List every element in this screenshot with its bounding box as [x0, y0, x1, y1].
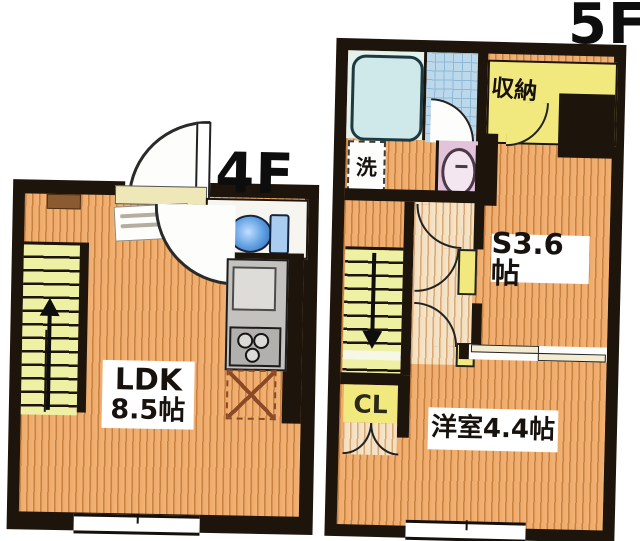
5f-window — [405, 520, 525, 541]
room-label-service: S3.6帖 — [490, 227, 589, 290]
floor-plan-canvas: LDK 8.5帖 4F 収納 洗 — [0, 0, 640, 541]
5f-western-label-box: 洋室4.4帖 — [428, 407, 559, 452]
5f-service-label-box: S3.6帖 — [491, 234, 590, 284]
floor-label-5f: 5F — [568, 0, 640, 57]
room-label-closet: CL — [353, 389, 388, 419]
room-label-storage: 収納 — [490, 68, 539, 106]
5f-door-post — [457, 249, 477, 295]
5f-closet: CL — [343, 384, 398, 423]
washbasin-tap-icon — [455, 165, 467, 168]
room-label-laundry: 洗 — [356, 151, 378, 182]
floor-plan-5f: 収納 洗 S3.6帖 — [0, 0, 640, 541]
down-arrow-head-icon — [362, 331, 382, 349]
sliding-panel — [471, 344, 539, 354]
5f-stair-landing — [343, 350, 401, 360]
5f-void-block — [558, 93, 616, 158]
bathtub-icon — [350, 54, 424, 142]
5f-laundry-space: 洗 — [347, 140, 386, 193]
sliding-panel — [538, 353, 606, 363]
room-label-western: 洋室4.4帖 — [431, 415, 556, 445]
